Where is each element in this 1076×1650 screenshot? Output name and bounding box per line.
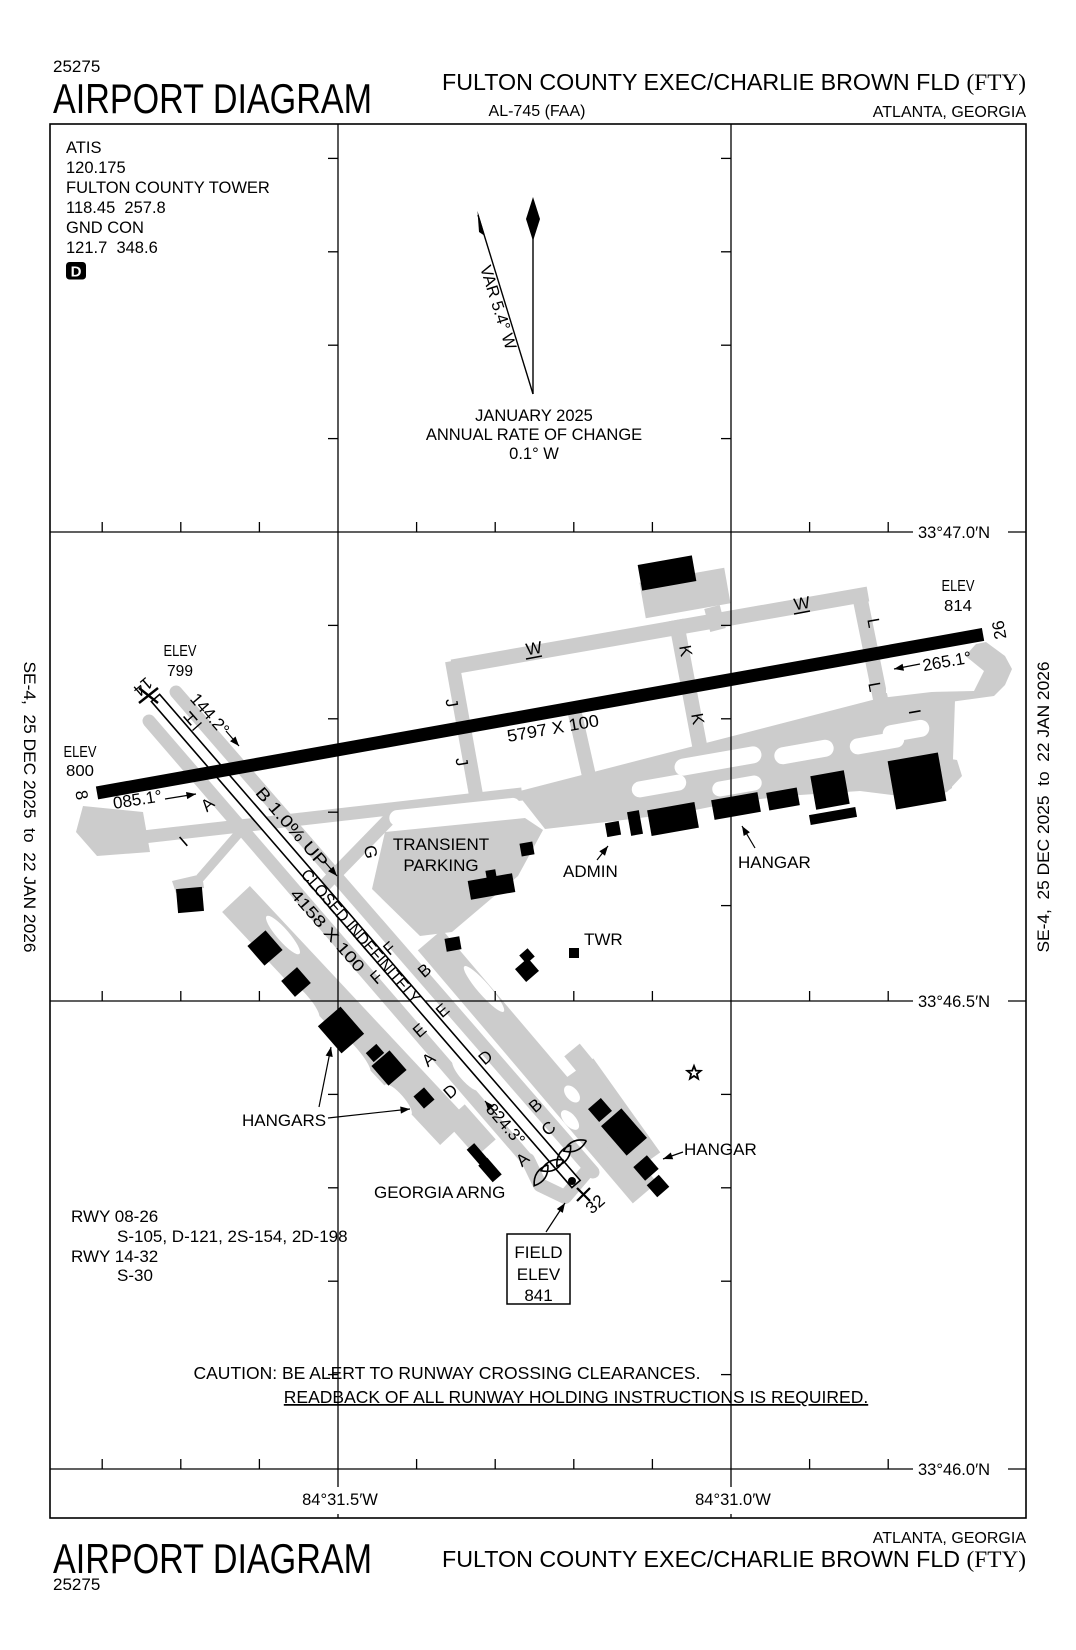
svg-text:ADMIN: ADMIN: [563, 862, 618, 881]
svg-text:84°31.0′W: 84°31.0′W: [695, 1491, 771, 1509]
svg-text:26: 26: [988, 619, 1010, 641]
svg-text:ELEV: ELEV: [517, 1265, 561, 1284]
svg-text:ELEV: ELEV: [942, 578, 976, 595]
svg-text:ELEV: ELEV: [64, 744, 98, 761]
svg-text:HANGARS: HANGARS: [242, 1111, 326, 1130]
svg-text:HANGAR: HANGAR: [738, 853, 811, 872]
svg-text:CAUTION: BE ALERT TO RUNWAY CR: CAUTION: BE ALERT TO RUNWAY CROSSING CLE…: [194, 1363, 701, 1383]
svg-text:D: D: [71, 264, 82, 281]
svg-text:AIRPORT DIAGRAM: AIRPORT DIAGRAM: [53, 1535, 372, 1582]
svg-text:JANUARY 2025: JANUARY 2025: [475, 407, 593, 425]
svg-text:PARKING: PARKING: [403, 856, 478, 875]
svg-text:118.45 257.8: 118.45 257.8: [66, 199, 166, 217]
svg-text:0.1° W: 0.1° W: [509, 445, 559, 463]
svg-text:FULTON COUNTY TOWER: FULTON COUNTY TOWER: [66, 179, 270, 197]
svg-text:800: 800: [66, 763, 94, 780]
svg-text:S-105, D-121, 2S-154, 2D-198: S-105, D-121, 2S-154, 2D-198: [117, 1227, 348, 1246]
svg-text:RWY 14-32: RWY 14-32: [71, 1247, 158, 1266]
svg-text:25275: 25275: [53, 1575, 100, 1594]
svg-text:ELEV: ELEV: [164, 643, 198, 660]
svg-text:AL-745 (FAA): AL-745 (FAA): [489, 103, 586, 120]
svg-text:25275: 25275: [53, 57, 100, 76]
svg-text:FULTON COUNTY EXEC/CHARLIE BRO: FULTON COUNTY EXEC/CHARLIE BROWN FLD (FT…: [442, 1546, 1026, 1572]
svg-text:ATLANTA, GEORGIA: ATLANTA, GEORGIA: [873, 104, 1027, 121]
svg-text:841: 841: [524, 1286, 552, 1305]
svg-text:799: 799: [167, 663, 193, 680]
svg-text:33°46.5′N: 33°46.5′N: [918, 993, 990, 1011]
svg-text:ATLANTA, GEORGIA: ATLANTA, GEORGIA: [873, 1530, 1027, 1547]
svg-text:84°31.5′W: 84°31.5′W: [302, 1491, 378, 1509]
svg-text:GEORGIA ARNG: GEORGIA ARNG: [374, 1183, 505, 1202]
svg-text:814: 814: [944, 598, 972, 615]
svg-text:TWR: TWR: [584, 930, 623, 949]
svg-text:SE-4, 25 DEC 2025 to 22 JAN: SE-4, 25 DEC 2025 to 22 JAN 2026: [1035, 662, 1053, 953]
svg-text:RWY 08-26: RWY 08-26: [71, 1207, 158, 1226]
svg-text:121.7 348.6: 121.7 348.6: [66, 239, 158, 257]
svg-text:33°47.0′N: 33°47.0′N: [918, 524, 990, 542]
svg-text:120.175: 120.175: [66, 159, 126, 177]
svg-text:33°46.0′N: 33°46.0′N: [918, 1461, 990, 1479]
svg-text:AIRPORT DIAGRAM: AIRPORT DIAGRAM: [53, 75, 372, 122]
svg-text:FULTON COUNTY EXEC/CHARLIE BRO: FULTON COUNTY EXEC/CHARLIE BROWN FLD (FT…: [442, 69, 1026, 95]
svg-text:S-30: S-30: [117, 1266, 153, 1285]
svg-text:READBACK OF ALL RUNWAY HOLDING: READBACK OF ALL RUNWAY HOLDING INSTRUCTI…: [284, 1387, 868, 1407]
svg-text:SE-4, 25 DEC 2025 to 22 JAN: SE-4, 25 DEC 2025 to 22 JAN 2026: [20, 662, 38, 953]
svg-text:ANNUAL RATE OF CHANGE: ANNUAL RATE OF CHANGE: [426, 426, 642, 444]
svg-text:FIELD: FIELD: [514, 1243, 562, 1262]
svg-text:GND CON: GND CON: [66, 219, 144, 237]
svg-text:ATIS: ATIS: [66, 139, 101, 157]
svg-text:TRANSIENT: TRANSIENT: [393, 835, 489, 854]
svg-text:HANGAR: HANGAR: [684, 1140, 757, 1159]
